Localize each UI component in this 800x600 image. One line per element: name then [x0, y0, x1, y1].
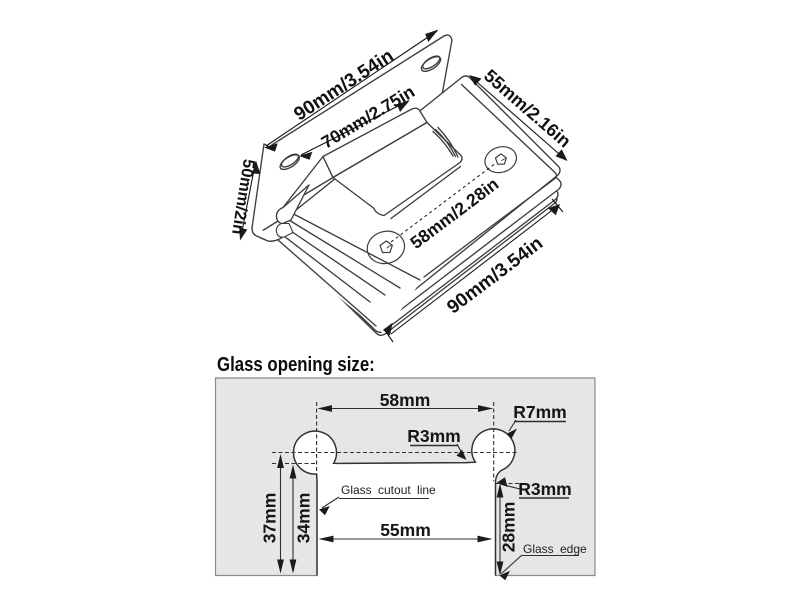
- svg-text:R7mm: R7mm: [513, 402, 567, 422]
- svg-text:Glass cutout line: Glass cutout line: [341, 483, 436, 497]
- svg-text:R3mm: R3mm: [518, 479, 572, 499]
- svg-text:28mm: 28mm: [499, 502, 519, 553]
- svg-text:55mm: 55mm: [380, 520, 431, 540]
- svg-text:34mm: 34mm: [294, 493, 314, 544]
- svg-text:Glass opening size:: Glass opening size:: [217, 352, 375, 375]
- svg-text:58mm: 58mm: [380, 390, 431, 410]
- svg-text:37mm: 37mm: [260, 493, 280, 544]
- svg-text:Glass edge: Glass edge: [523, 542, 587, 556]
- svg-text:R3mm: R3mm: [407, 426, 461, 446]
